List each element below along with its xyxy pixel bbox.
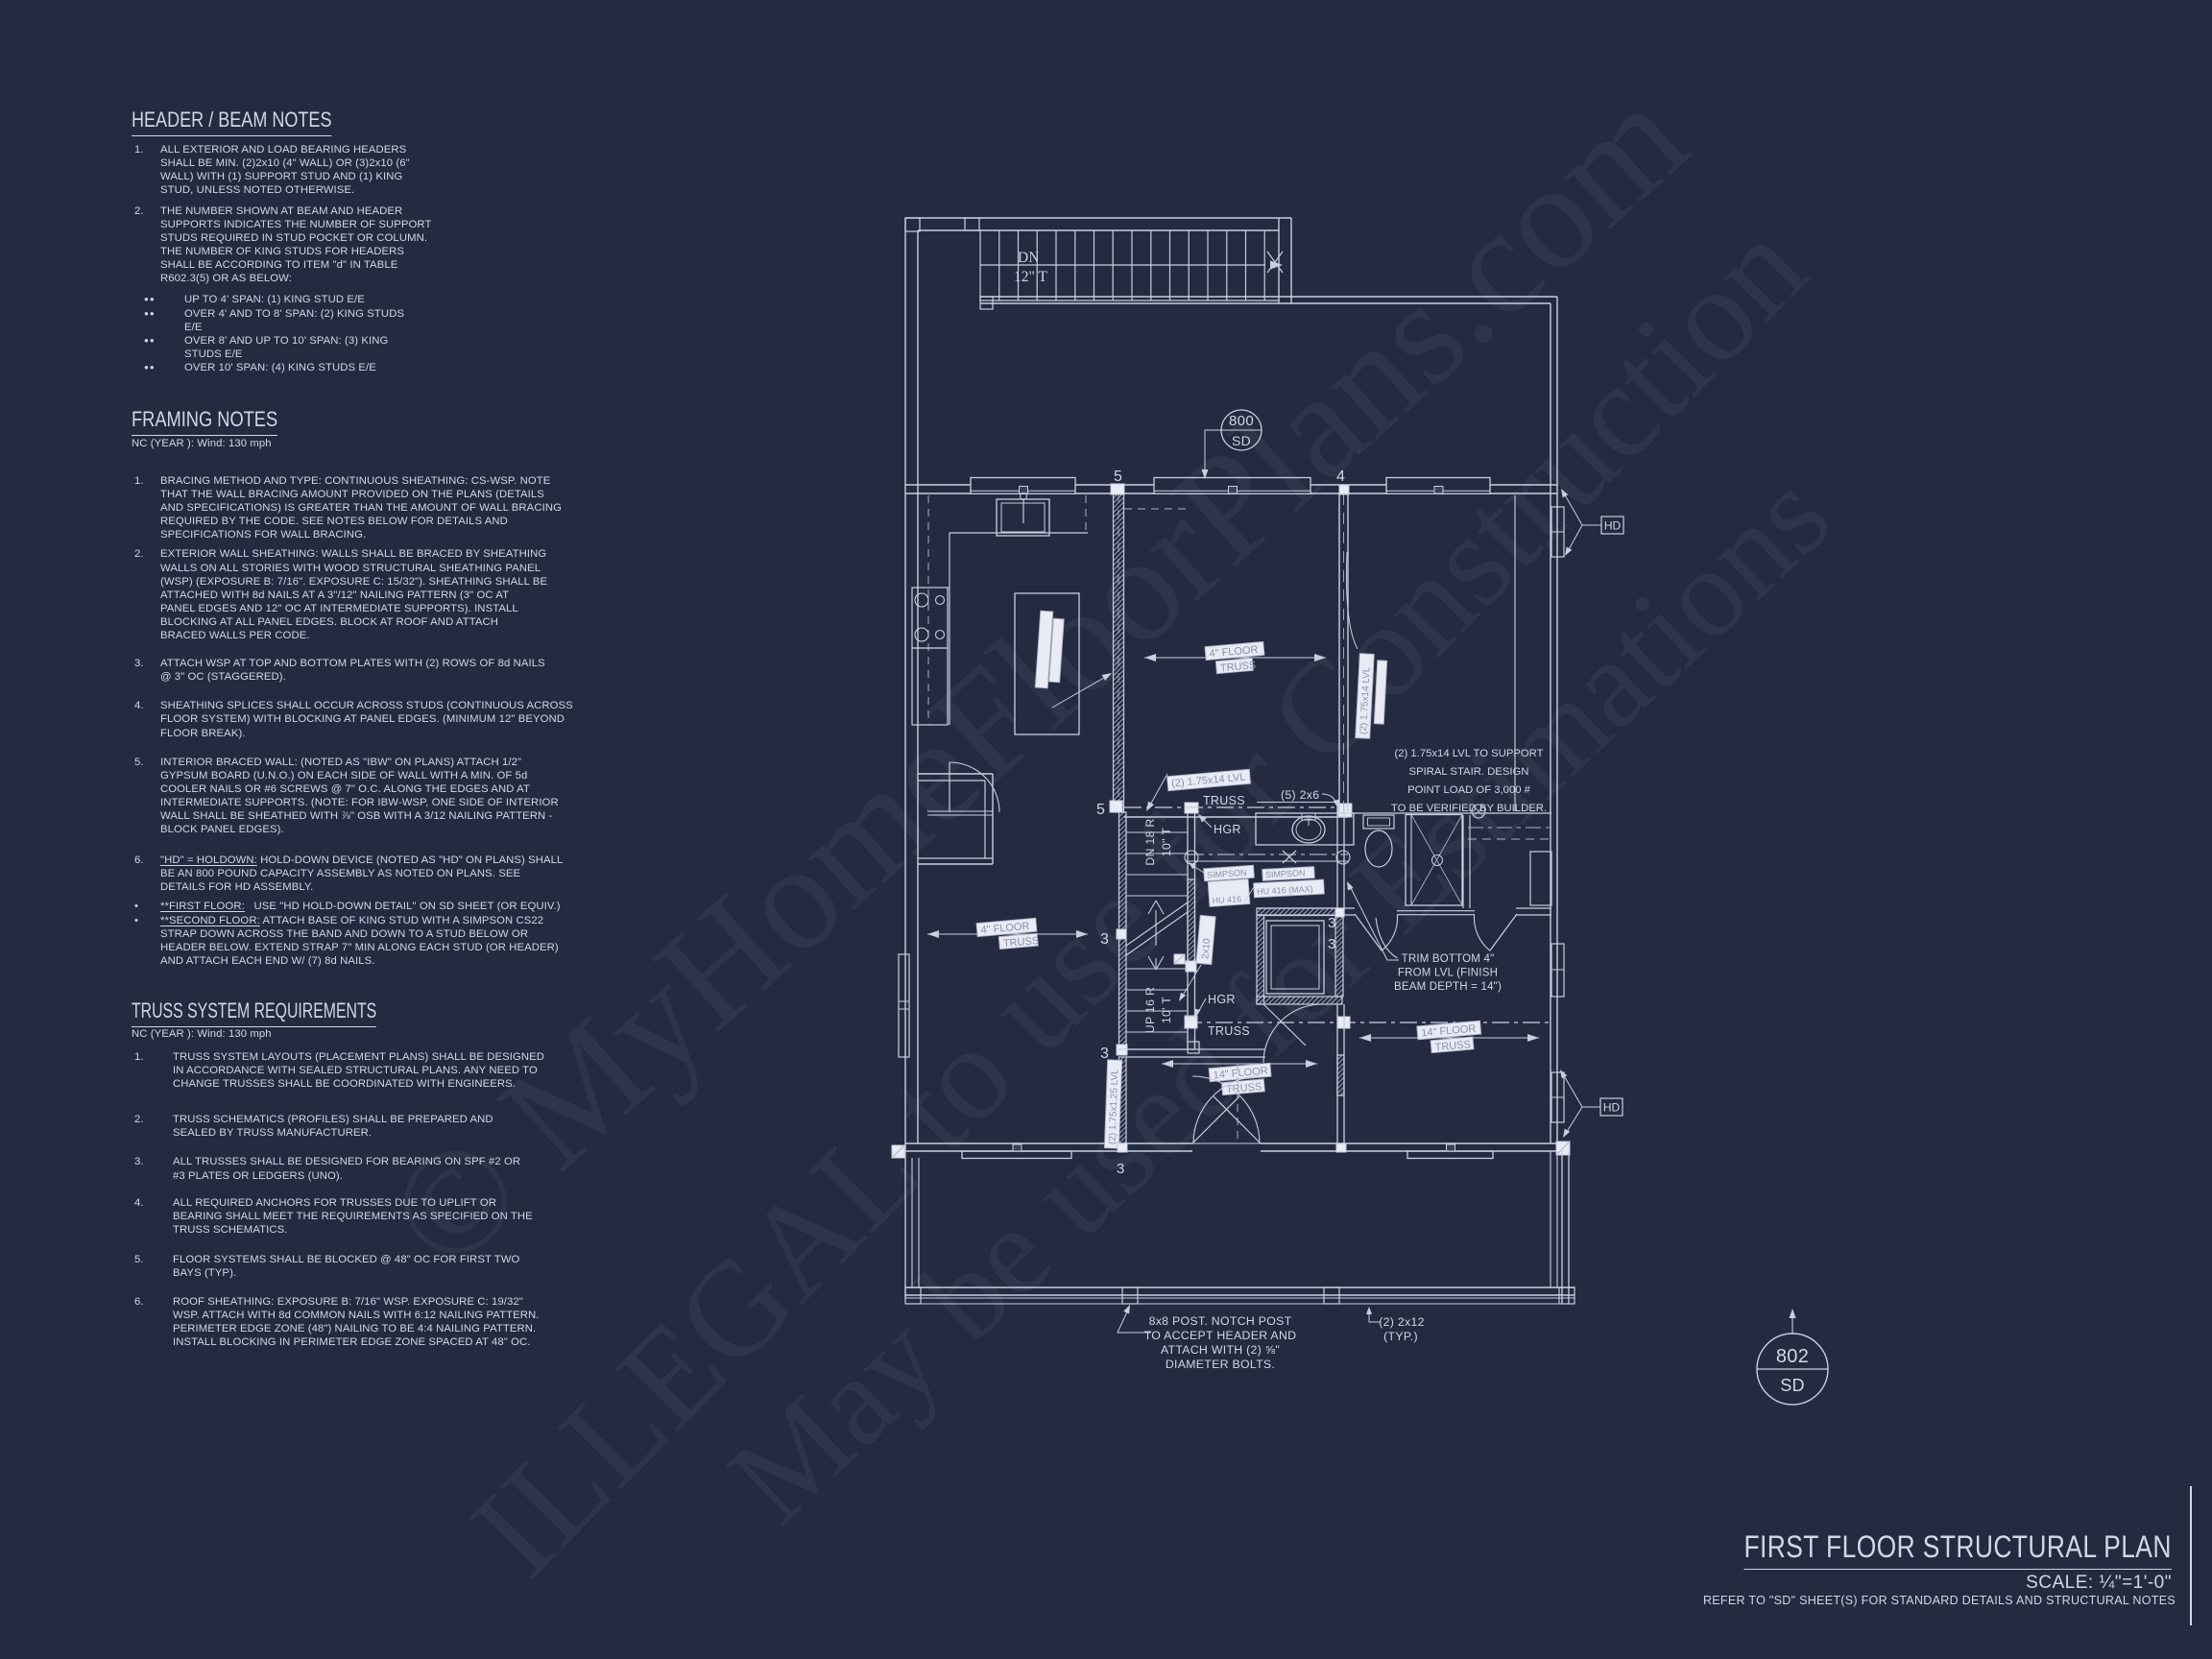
svg-text:HD: HD: [1604, 519, 1622, 533]
svg-text:4: 4: [1336, 469, 1345, 485]
svg-text:DN 18 R: DN 18 R: [1143, 818, 1157, 865]
svg-text:802: 802: [1776, 1346, 1809, 1367]
svg-text:DN: DN: [1018, 250, 1039, 266]
svg-text:HGR: HGR: [1214, 823, 1241, 836]
svg-text:ATTACH WITH (2) ⅝": ATTACH WITH (2) ⅝": [1161, 1343, 1280, 1357]
svg-text:5: 5: [1114, 469, 1122, 485]
svg-text:800: 800: [1229, 413, 1254, 429]
svg-text:TRIM BOTTOM 4": TRIM BOTTOM 4": [1402, 953, 1495, 965]
svg-text:HD: HD: [1603, 1101, 1621, 1115]
svg-text:(2) 2x12: (2) 2x12: [1379, 1315, 1425, 1329]
svg-text:TRUSS: TRUSS: [1208, 1024, 1250, 1038]
svg-text:FROM LVL (FINISH: FROM LVL (FINISH: [1398, 968, 1498, 979]
svg-text:(TYP.): (TYP.): [1383, 1330, 1418, 1343]
svg-text:5: 5: [1096, 802, 1105, 818]
svg-text:SD: SD: [1232, 433, 1251, 448]
svg-text:10" T: 10" T: [1160, 828, 1173, 856]
svg-text:3: 3: [1117, 1161, 1125, 1177]
svg-text:(2) 1.75x14 LVL TO SUPPORT: (2) 1.75x14 LVL TO SUPPORT: [1394, 748, 1543, 759]
svg-text:TRUSS: TRUSS: [1219, 660, 1256, 674]
svg-text:TO ACCEPT HEADER AND: TO ACCEPT HEADER AND: [1144, 1329, 1297, 1342]
svg-text:DIAMETER BOLTS.: DIAMETER BOLTS.: [1166, 1358, 1275, 1371]
svg-text:BEAM DEPTH = 14"): BEAM DEPTH = 14"): [1394, 981, 1502, 993]
svg-text:8x8 POST. NOTCH POST: 8x8 POST. NOTCH POST: [1149, 1314, 1292, 1328]
svg-text:10' T: 10' T: [1160, 997, 1173, 1023]
svg-text:(5) 2x6: (5) 2x6: [1281, 788, 1319, 802]
svg-text:HGR: HGR: [1208, 993, 1236, 1006]
svg-text:POINT LOAD OF 3,000 #: POINT LOAD OF 3,000 #: [1407, 784, 1531, 796]
svg-text:3: 3: [1100, 931, 1109, 948]
svg-text:2x10: 2x10: [1200, 938, 1213, 960]
svg-text:TO BE VERIFIED BY BUILDER.: TO BE VERIFIED BY BUILDER.: [1391, 803, 1547, 814]
svg-text:SPIRAL STAIR. DESIGN: SPIRAL STAIR. DESIGN: [1409, 766, 1529, 778]
svg-text:12" T: 12" T: [1014, 269, 1047, 285]
svg-text:TRUSS: TRUSS: [1203, 794, 1245, 807]
svg-text:UP 16 R: UP 16 R: [1143, 987, 1157, 1033]
svg-text:TRUSS: TRUSS: [1002, 935, 1039, 950]
svg-text:HU 416: HU 416: [1212, 894, 1241, 905]
svg-text:3: 3: [1328, 915, 1336, 931]
svg-text:3: 3: [1328, 936, 1336, 952]
svg-text:SD: SD: [1780, 1376, 1805, 1395]
svg-text:TRUSS: TRUSS: [1434, 1039, 1471, 1053]
